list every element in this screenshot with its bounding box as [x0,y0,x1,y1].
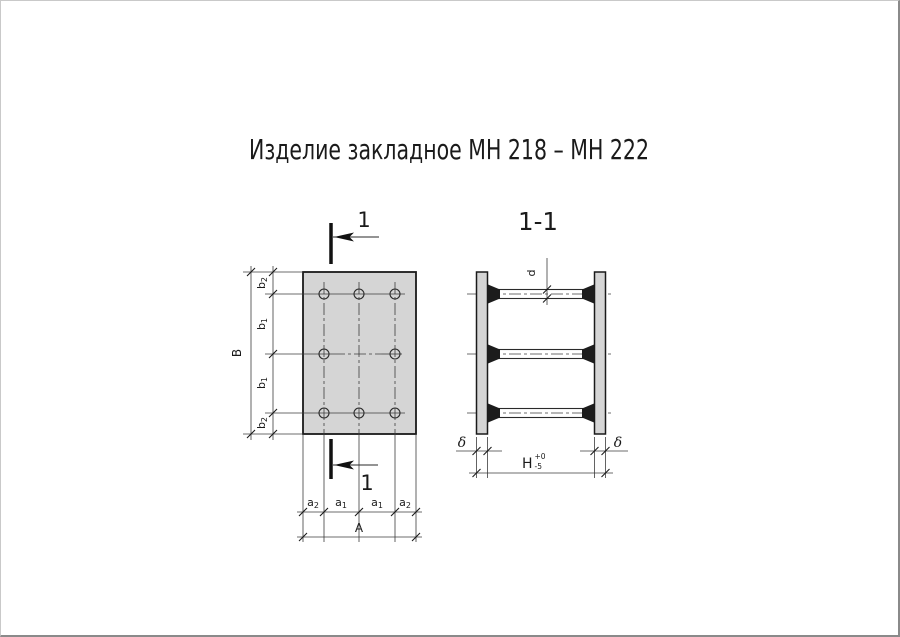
section-cut-mark-top: 1 [331,208,379,264]
dim-label-b2: b2 [255,277,269,289]
section-view: 1-1 d [456,207,628,478]
section-view-label: 1-1 [518,207,558,236]
drawing-canvas: Изделие закладное МН 218 – МН 222 [1,1,899,635]
dim-label-b1: b1 [255,318,269,330]
section-cut-number: 1 [357,208,370,232]
dim-label-H-tol-upper: +0 [535,452,546,461]
plan-left-dimensions: B b2 b1 b1 b2 [230,266,303,440]
dim-label-b1: b1 [255,377,269,389]
weld-cone [488,345,500,364]
dim-label-b2: b2 [255,417,269,429]
dim-delta-right: δ [580,435,628,455]
dim-label-H: H [522,456,533,472]
drawing-title: Изделие закладное МН 218 – МН 222 [249,133,649,166]
dim-label-a2: a2 [399,496,411,510]
dim-H: H +0 -5 [469,452,613,477]
weld-cone [582,345,594,364]
weld-cone [582,285,594,304]
weld-cone [488,285,500,304]
weld-cones [488,285,594,423]
plan-bottom-dimensions: a2 a1 a1 a2 A [297,496,422,541]
dim-label-B: B [230,349,244,357]
anchor-rods [488,290,595,418]
section-cut-mark-bottom: 1 [331,439,378,495]
drawing-sheet: Изделие закладное МН 218 – МН 222 [0,0,900,637]
section-plate-right [595,272,606,434]
dim-label-a1: a1 [371,496,383,510]
dim-label-delta: δ [458,435,466,451]
dim-label-H-tol-lower: -5 [535,462,543,471]
dim-label-d: d [525,270,538,277]
section-plate-left [477,272,488,434]
dim-label-a1: a1 [335,496,347,510]
plan-view: B b2 b1 b1 b2 a2 a1 a1 a2 A [230,208,422,542]
dim-delta-left: δ [456,435,502,455]
weld-cone [582,404,594,423]
section-cut-number: 1 [360,471,373,495]
dim-label-a2: a2 [307,496,319,510]
weld-cone [488,404,500,423]
dim-label-delta: δ [614,435,622,451]
dim-label-A: A [355,521,364,535]
